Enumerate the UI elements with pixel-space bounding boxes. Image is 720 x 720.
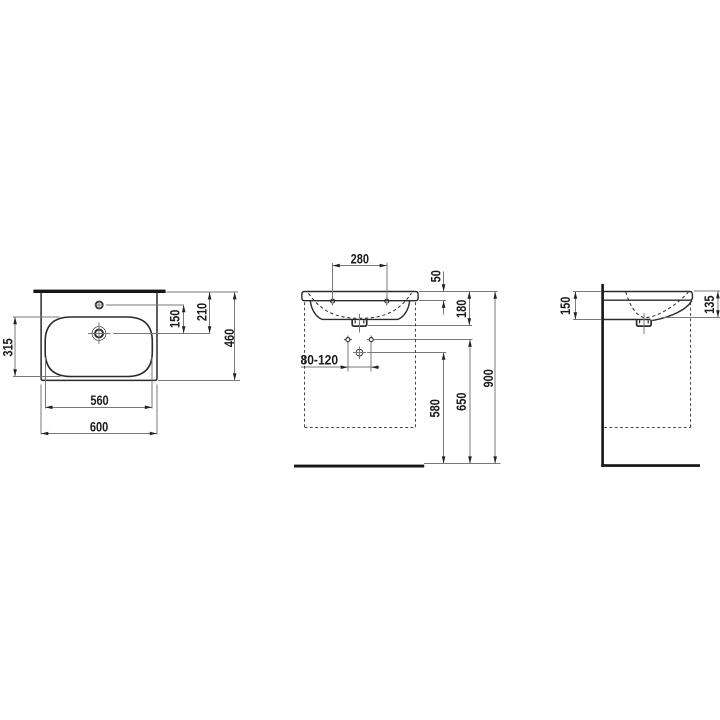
svg-text:280: 280 xyxy=(351,251,369,266)
svg-text:150: 150 xyxy=(558,297,573,315)
svg-text:900: 900 xyxy=(481,369,496,387)
svg-text:210: 210 xyxy=(194,303,209,321)
svg-text:460: 460 xyxy=(222,329,237,347)
svg-text:580: 580 xyxy=(428,399,443,417)
svg-text:315: 315 xyxy=(0,338,15,356)
svg-text:135: 135 xyxy=(702,295,717,313)
svg-text:650: 650 xyxy=(454,392,469,410)
svg-text:150: 150 xyxy=(167,310,182,328)
svg-text:560: 560 xyxy=(90,393,108,408)
svg-text:600: 600 xyxy=(90,420,108,435)
svg-text:80-120: 80-120 xyxy=(300,352,338,368)
svg-text:180: 180 xyxy=(454,300,469,318)
svg-text:50: 50 xyxy=(428,270,443,282)
